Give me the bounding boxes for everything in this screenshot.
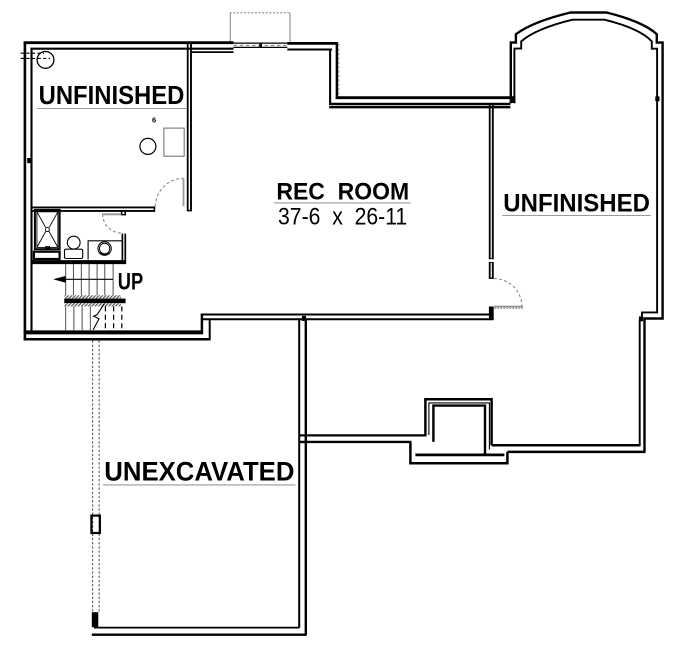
- svg-text:UP: UP: [118, 269, 143, 296]
- svg-text:UNEXCAVATED: UNEXCAVATED: [104, 456, 294, 487]
- svg-text:UNFINISHED: UNFINISHED: [503, 190, 650, 217]
- svg-text:6: 6: [152, 116, 156, 125]
- svg-text:REC ROOM: REC ROOM: [276, 178, 409, 205]
- svg-text:UNFINISHED: UNFINISHED: [39, 80, 185, 110]
- svg-text:37-6 x 26-11: 37-6 x 26-11: [278, 204, 407, 231]
